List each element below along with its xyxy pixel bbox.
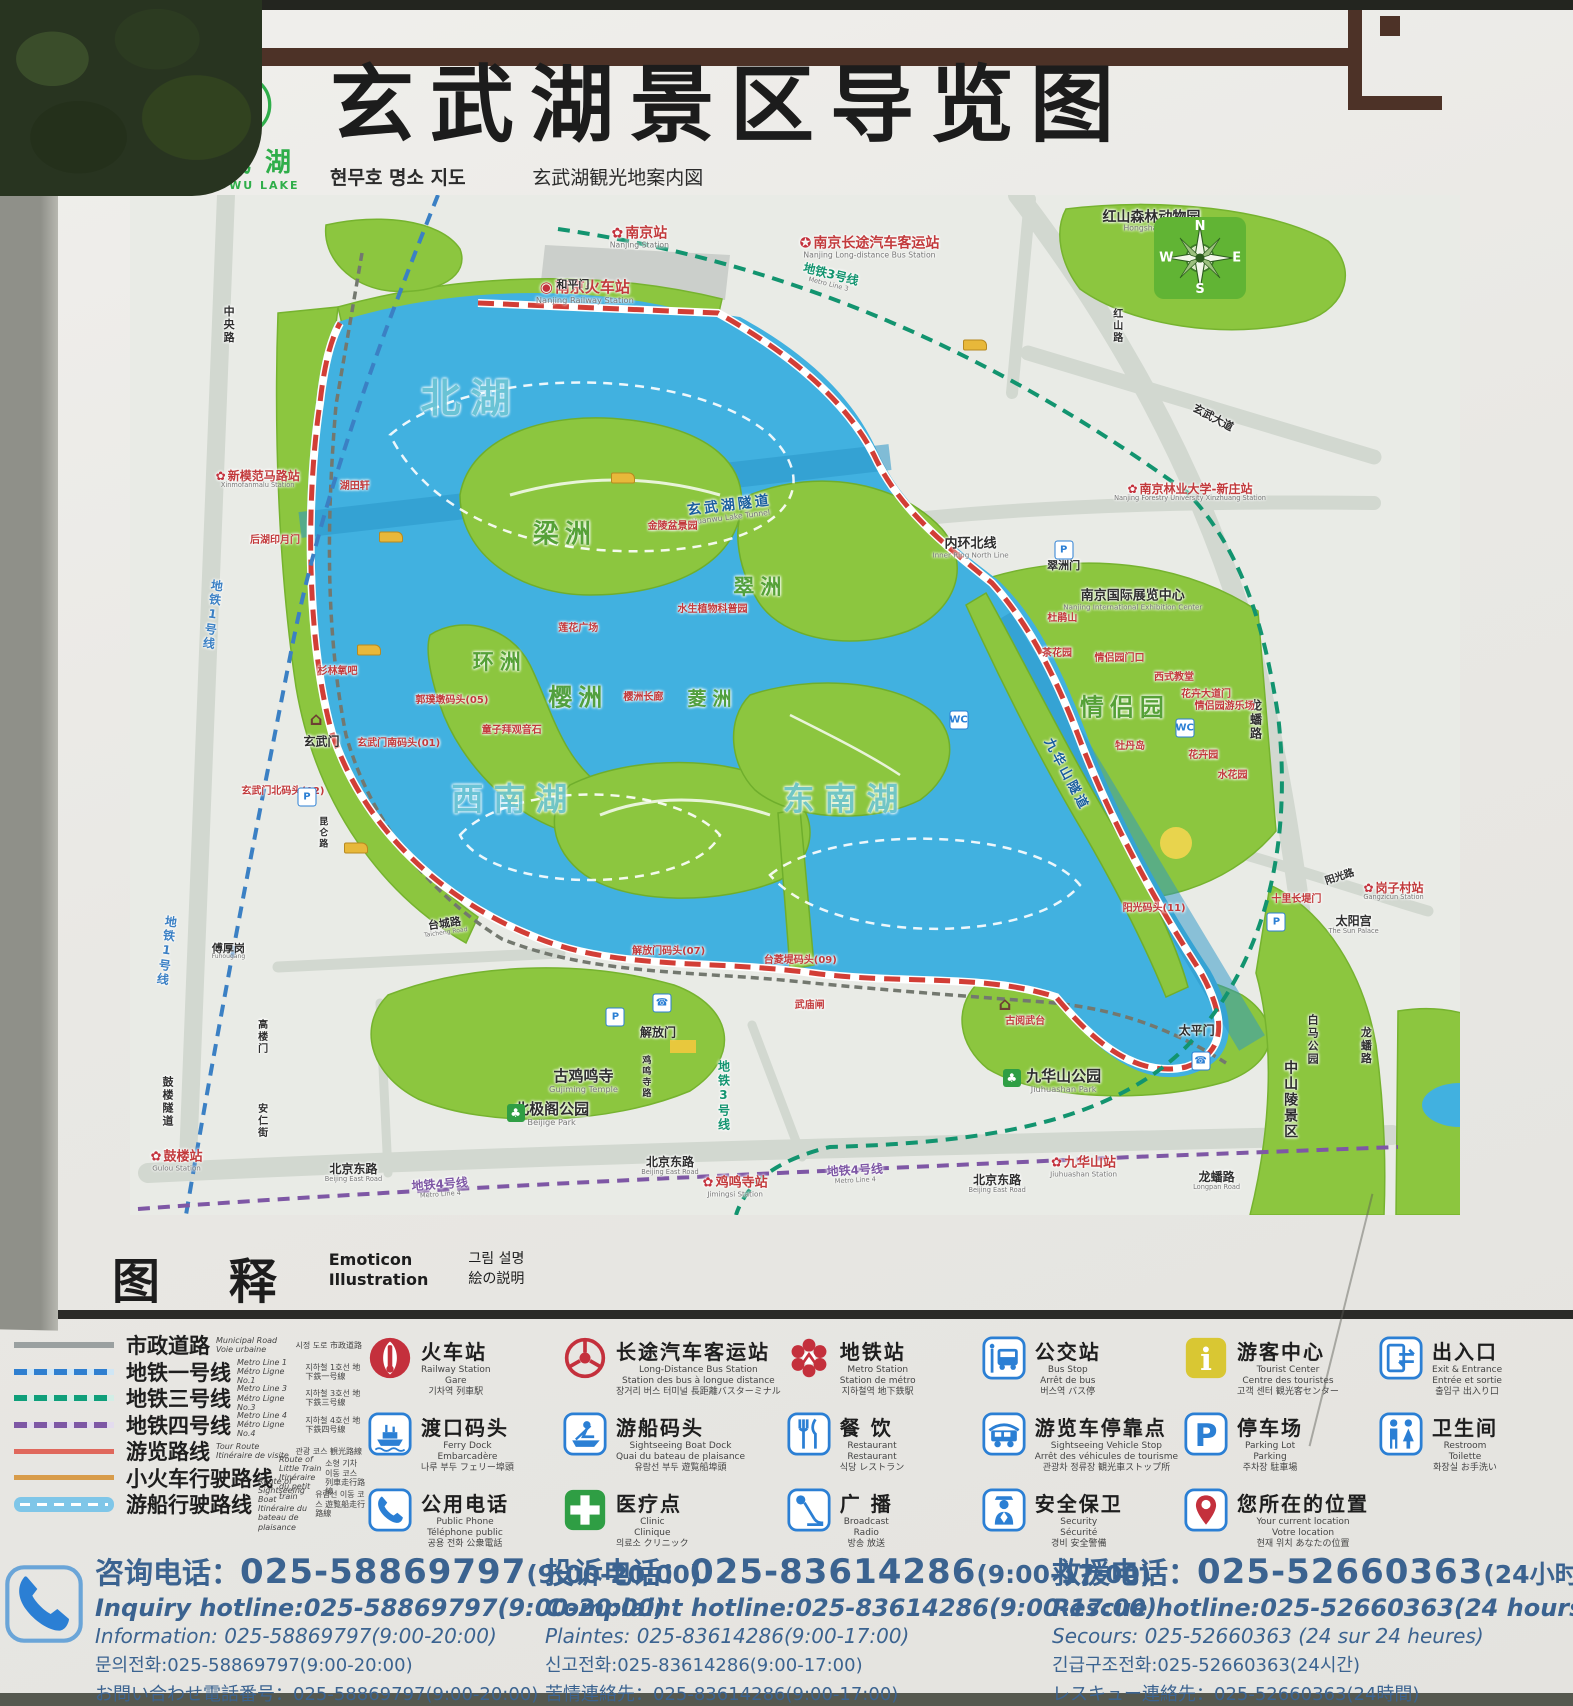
legend-route-road: 市政道路Municipal RoadVoie urbaine시정 도로 市政道路 <box>14 1332 366 1359</box>
map-label: 昆仑路 <box>317 816 326 849</box>
legend-item-subtext: Téléphone public <box>421 1528 509 1539</box>
clinic-icon <box>563 1488 607 1532</box>
map-label: 水生植物科普园 <box>678 605 748 616</box>
legend-item-pin: 您所在的位置Your current locationVotre locatio… <box>1184 1480 1373 1556</box>
phone-icon: ☎ <box>653 993 672 1012</box>
legend-item-name-cn: 医疗点 <box>616 1488 689 1517</box>
hotline-section: 咨询电话：025-58869797(9:00-20:00)Inquiry hot… <box>0 1550 1573 1700</box>
map-label: 南京国际展览中心Nanjing International Exhibition… <box>1063 589 1202 610</box>
map-label: 玄武门南码头(01) <box>357 739 440 750</box>
exit-icon <box>1379 1336 1423 1380</box>
map-label: 红山路 <box>1110 308 1121 344</box>
hotline-main-line: 咨询电话：025-58869797(9:00-20:00) <box>95 1550 540 1592</box>
map-label: ✿岗子村站Gangzicun Station <box>1363 882 1423 902</box>
hotline-main-line: 救援电话：025-52660363(24小时) <box>1052 1550 1567 1592</box>
parking-icon: P <box>606 1008 625 1027</box>
hotline-subline: レスキュー連絡先：025-52660363(24時間) <box>1052 1680 1567 1706</box>
route-name-en-fr: Metro Line 3Métro Ligne No.3 <box>237 1384 305 1412</box>
parking-icon: P <box>1054 540 1073 559</box>
map-label: ✿新模范马路站Xinmofanmalu Station <box>216 470 300 490</box>
hotline-subline: Information: 025-58869797(9:00-20:00) <box>95 1624 540 1648</box>
map-label: 内环北线Inner Ring North Line <box>932 537 1008 558</box>
route-name-en-fr: Municipal RoadVoie urbaine <box>216 1336 296 1354</box>
subtitle-kr-jp: 현무호 명소 지도 玄武湖観光地案内図 <box>330 163 1360 190</box>
map-label: 地铁4号线Metro Line 4 <box>411 1177 469 1200</box>
legend-item-subtext: 의료소 クリニック <box>616 1539 689 1550</box>
tour-line-sample-icon <box>14 1449 114 1454</box>
legend-item-ferry: 渡口码头Ferry DockEmbarcadère나루 부두 フェリー埠頭 <box>368 1404 557 1480</box>
legend-item-subtext: Toilette <box>1432 1452 1498 1463</box>
map-label: 北湖 <box>420 378 520 420</box>
legend-item-subtext: Public Phone <box>421 1517 509 1528</box>
map-label: 地铁4号线Metro Line 4 <box>826 1163 883 1185</box>
map-label: 童子拜观音石 <box>482 725 542 736</box>
legend-item-subtext: Clinique <box>616 1528 689 1539</box>
map-label: 西南湖 <box>451 783 577 817</box>
legend-item-subtext: 공용 전화 公衆電話 <box>421 1539 509 1550</box>
metro-logo-icon: ✿ <box>1127 483 1137 496</box>
route-name-en-fr: Metro Line 4Métro Ligne No.4 <box>237 1411 305 1439</box>
restroom-icon: WC <box>1175 719 1194 738</box>
legend-item-wc: 卫生间RestroomToilette화장실 お手洗い <box>1379 1404 1568 1480</box>
map-label: 解放门码头(07) <box>632 947 705 958</box>
map-label: ✿南京站Nanjing Station <box>610 226 669 249</box>
hotline-subline: 신고전화:025-83614286(9:00-17:00) <box>545 1651 1040 1677</box>
map-label: 北京东路Beijing East Road <box>641 1156 698 1176</box>
legend-item-subtext: Restaurant <box>840 1441 904 1452</box>
legend-item-name-cn: 游览车停靠点 <box>1035 1412 1178 1441</box>
route-name-kr-jp: 지하철 3호선 地下鉄三号線 <box>305 1389 366 1407</box>
legend-item-cart: 游览车停靠点Sightseeing Vehicle StopArrêt des … <box>982 1404 1178 1480</box>
map-label: 太平门 <box>1179 1025 1215 1038</box>
route-name-cn: 小火车行驶路线 <box>126 1463 273 1493</box>
legend-body: 市政道路Municipal RoadVoie urbaine시정 도로 市政道路… <box>0 1328 1573 1556</box>
map-label: 情侣园游乐场 <box>1195 702 1255 713</box>
tree-icon: ♣ <box>507 1104 525 1122</box>
legend-item-parking: 停车场Parking LotParking주차장 駐車場 <box>1184 1404 1373 1480</box>
route-name-en-fr: Route of Sightseeing BoatItinéraire du b… <box>258 1477 315 1532</box>
hotline-subline: 문의전화:025-58869797(9:00-20:00) <box>95 1651 540 1677</box>
map-label: 地铁1号线 <box>155 914 177 987</box>
legend-divider <box>0 1310 1573 1319</box>
map-label: 翠洲门 <box>1047 560 1080 572</box>
telephone-icon <box>4 1556 84 1652</box>
boat-icon <box>344 842 368 853</box>
compass-east: E <box>1232 251 1241 266</box>
legend-item-subtext: 장거리 버스 터미널 長距離バスターミナル <box>616 1387 781 1398</box>
map-label: 九华山隧道 <box>1042 737 1092 814</box>
legend-item-subtext: Quai du bateau de plaisance <box>616 1452 745 1463</box>
route-name-cn: 地铁一号线 <box>126 1357 231 1387</box>
boat-icon <box>357 644 381 655</box>
train-logo-icon: ◉ <box>540 280 553 296</box>
legend-route-list: 市政道路Municipal RoadVoie urbaine시정 도로 市政道路… <box>14 1332 366 1518</box>
m4-line-sample-icon <box>14 1422 114 1428</box>
legend-item-exit: 出入口Exit & EntranceEntrée et sortie출입구 出入… <box>1379 1328 1568 1404</box>
map-label: 莲花广场 <box>558 623 598 634</box>
hotline-subline: 긴급구조전화:025-52660363(24시간) <box>1052 1651 1567 1677</box>
legend-header: 图 释 EmoticonIllustration 그림 설명絵の説明 <box>112 1242 524 1312</box>
legend-item-guard: 安全保卫SecuritySécurité경비 安全警備 <box>982 1480 1178 1556</box>
map-label: 北极阁公园Beijige Park <box>514 1102 589 1126</box>
legend-item-subtext: Entrée et sortie <box>1432 1376 1502 1387</box>
tree-icon: ♣ <box>1003 1069 1021 1087</box>
coach-icon <box>563 1336 607 1380</box>
legend-route-boat: 游船行驶路线Route of Sightseeing BoatItinérair… <box>14 1491 366 1518</box>
legend-item-subtext: Tourist Center <box>1237 1365 1339 1376</box>
sign-board: 玄武湖 XUAN WU LAKE 玄武湖景区导览图 현무호 명소 지도 玄武湖観… <box>0 10 1573 1693</box>
hotline-subline: Inquiry hotline:025-58869797(9:00-20:00) <box>95 1594 540 1622</box>
m3-line-sample-icon <box>14 1395 114 1401</box>
compass-north: N <box>1195 219 1206 234</box>
route-name-cn: 地铁三号线 <box>126 1383 231 1413</box>
legend-item-subtext: 나루 부두 フェリー埠頭 <box>421 1463 514 1474</box>
map-label: 安仁街 <box>255 1103 266 1139</box>
legend-item-subtext: Railway Station <box>421 1365 491 1376</box>
restroom-icon: WC <box>949 711 968 730</box>
phone-icon: ☎ <box>1191 1051 1210 1070</box>
hotline-subline: Rescue hotline:025-52660363(24 hours) <box>1052 1594 1567 1622</box>
hotline-main-line: 投诉电话：025-83614286(9:00-17:00) <box>545 1550 1040 1592</box>
legend-item-name-cn: 您所在的位置 <box>1237 1488 1369 1517</box>
map-label: 花卉园 <box>1188 751 1218 762</box>
metro-logo-icon: ✿ <box>612 226 624 241</box>
legend-item-name-cn: 广 播 <box>840 1488 893 1517</box>
hotline-subline: Secours: 025-52660363 (24 sur 24 heures) <box>1052 1624 1567 1648</box>
map-label: 西式教堂 <box>1154 673 1194 684</box>
map-label: 太阳宫The Sun Palace <box>1328 916 1378 936</box>
legend-item-name-cn: 出入口 <box>1432 1336 1502 1365</box>
legend-item-subtext: Restaurant <box>840 1452 904 1463</box>
map-label: 龙蟠路 <box>1360 1026 1372 1065</box>
map-label: 傅厚岗Fuhougang <box>212 943 246 961</box>
route-name-kr-jp: 지하철 4호선 地下鉄四号線 <box>305 1416 366 1434</box>
legend-item-subtext: 관광차 정류장 観光車ストップ所 <box>1035 1463 1178 1474</box>
legend-item-subtext: Gare <box>421 1376 491 1387</box>
legend-item-subtext: 현재 위치 あなたの位置 <box>1237 1539 1369 1550</box>
map-label: ✿鼓楼站Gulou Station <box>151 1150 203 1171</box>
legend-item-food: 餐 饮RestaurantRestaurant식당 レストラン <box>787 1404 976 1480</box>
map-label: 玄武门 <box>304 735 340 748</box>
legend-item-subtext: Exit & Entrance <box>1432 1365 1502 1376</box>
map-label: 鸡鸣寺路 <box>640 1055 649 1099</box>
map-label: 环洲 <box>473 651 527 673</box>
legend-item-subtext: Sightseeing Boat Dock <box>616 1441 745 1452</box>
boat-icon <box>611 472 635 483</box>
legend-item-name-cn: 公用电话 <box>421 1488 509 1517</box>
train-icon <box>368 1336 412 1380</box>
photo-background: 玄武湖 XUAN WU LAKE 玄武湖景区导览图 현무호 명소 지도 玄武湖観… <box>0 0 1573 1693</box>
legend-title: 图 释 <box>112 1242 303 1312</box>
map-label: 水花园 <box>1218 771 1248 782</box>
parking-icon: P <box>1267 913 1286 932</box>
legend-item-subtext: Ferry Dock <box>421 1441 514 1452</box>
legend-item-subtext: Broadcast <box>840 1517 893 1528</box>
legend-item-subtext: Bus Stop <box>1035 1365 1101 1376</box>
map-label: 九华山公园Jiuhuashan Park <box>1026 1069 1101 1093</box>
cart-icon <box>982 1412 1026 1456</box>
boat-icon <box>379 531 403 542</box>
legend-item-subtext: Arrêt des véhicules de tourisme <box>1035 1452 1178 1463</box>
map-label: 北京东路Beijing East Road <box>968 1175 1025 1195</box>
legend-route-m4: 地铁四号线Metro Line 4Métro Ligne No.4지하철 4호선… <box>14 1412 366 1439</box>
legend-item-subtext: 지하철역 地下鉄駅 <box>840 1387 916 1398</box>
legend-item-subtext: 방송 放送 <box>840 1539 893 1550</box>
map-label: 樱洲长廊 <box>623 693 663 704</box>
food-icon <box>787 1412 831 1456</box>
legend-item-subtext: Sécurité <box>1035 1528 1123 1539</box>
legend-item-name-cn: 卫生间 <box>1432 1412 1498 1441</box>
legend-item-name-cn: 地铁站 <box>840 1336 916 1365</box>
map-label: 阳光码头(11) <box>1123 904 1186 915</box>
boat-line-sample-icon <box>14 1497 114 1512</box>
map-label: 地铁1号线 <box>201 579 223 652</box>
map-label: 台城路Taicheng Road <box>422 915 468 939</box>
route-name-cn: 游船行驶路线 <box>126 1489 252 1519</box>
gate-icon: ⌂ <box>306 711 326 727</box>
hotline-subline: 苦情連絡先：025-83614286(9:00-17:00) <box>545 1680 1040 1706</box>
map-label: 古阅武台 <box>1005 1017 1045 1028</box>
gate-icon: ⌂ <box>995 997 1015 1013</box>
legend-item-subtext: Arrêt de bus <box>1035 1376 1101 1387</box>
legend-item-subtext: 경비 安全警備 <box>1035 1539 1123 1550</box>
metro-logo-icon: ✿ <box>703 1177 714 1191</box>
boat-icon <box>963 339 987 350</box>
map-label: 古鸡鸣寺Gujiming Temple <box>549 1069 618 1093</box>
legend-item-subtext: 주차장 駐車場 <box>1237 1463 1303 1474</box>
foliage <box>0 0 262 196</box>
legend-item-name-cn: 游客中心 <box>1237 1336 1339 1365</box>
map-label: 北京东路Beijing East Road <box>325 1163 382 1183</box>
legend-item-subtext: Restroom <box>1432 1441 1498 1452</box>
legend-item-subtext: Votre location <box>1237 1528 1369 1539</box>
legend-item-subtext: Clinic <box>616 1517 689 1528</box>
legend-item-bus: 公交站Bus StopArrêt de bus버스역 バス停 <box>982 1328 1178 1404</box>
map-label: 郭璞墩码头(05) <box>415 696 488 707</box>
legend-item-subtext: Parking <box>1237 1452 1303 1463</box>
legend-item-name-cn: 渡口码头 <box>421 1412 514 1441</box>
parking-icon: P <box>297 787 316 806</box>
map-label: 菱洲 <box>688 690 738 710</box>
map-label: 玄武大道 <box>1190 403 1234 434</box>
legend-item-subtext: 화장실 お手洗い <box>1432 1463 1498 1474</box>
metro-icon <box>787 1336 831 1380</box>
map-label: 梁洲 <box>533 521 597 548</box>
map-label: 龙蟠路Longpan Road <box>1193 1172 1240 1192</box>
legend-title-kj: 그림 설명絵の説明 <box>468 1250 524 1289</box>
phone-icon <box>368 1488 412 1532</box>
route-name-cn: 游览路线 <box>126 1436 210 1466</box>
legend-item-subtext: Station de métro <box>840 1376 916 1387</box>
metro-logo-icon: ✿ <box>216 470 226 483</box>
map-label: 十里长堤门 <box>1271 895 1321 906</box>
map-label: 后湖印月门 <box>250 536 300 547</box>
concrete-wall <box>0 149 58 1330</box>
m1-line-sample-icon <box>14 1369 114 1375</box>
legend-item-metro: 地铁站Metro StationStation de métro지하철역 地下鉄… <box>787 1328 976 1404</box>
bus-icon <box>982 1336 1026 1380</box>
legend-item-boat: 游船码头Sightseeing Boat DockQuai du bateau … <box>563 1404 781 1480</box>
map-panel: 北湖西南湖东南湖梁洲环洲樱洲菱洲翠洲情侣园✿南京站Nanjing Station… <box>130 195 1460 1215</box>
map-label: ✿九华山站Jiuhuashan Station <box>1050 1156 1117 1177</box>
map-label: 玄武湖隧道Xuanwu Lake Tunnel <box>686 494 773 527</box>
board-frame-corner-right <box>1348 10 1442 110</box>
legend-item-subtext: 기차역 列車駅 <box>421 1387 491 1398</box>
route-name-kr-jp: 지하철 1호선 地下鉄一号線 <box>305 1363 366 1381</box>
legend-item-subtext: Embarcadère <box>421 1452 514 1463</box>
ferry-icon <box>368 1412 412 1456</box>
legend-item-subtext: Parking Lot <box>1237 1441 1303 1452</box>
map-label: 翠洲 <box>733 576 787 598</box>
coach-logo-icon: ✪ <box>800 237 812 252</box>
subtitle-japanese: 玄武湖観光地案内図 <box>532 167 703 189</box>
map-label: 解放门 <box>640 1027 676 1040</box>
legend-item-subtext: Metro Station <box>840 1365 916 1376</box>
hotline-2: 投诉电话：025-83614286(9:00-17:00)Complaint h… <box>545 1550 1040 1706</box>
map-label: 武庙闸 <box>795 1001 825 1012</box>
route-name-kr-jp: 시정 도로 市政道路 <box>296 1341 366 1350</box>
hotline-subline: Plaintes: 025-83614286(9:00-17:00) <box>545 1624 1040 1648</box>
mic-icon <box>787 1488 831 1532</box>
map-label: 茶花园 <box>1042 649 1072 660</box>
map-label: 情侣园 <box>1080 695 1170 720</box>
legend-icon-grid: 火车站Railway StationGare기차역 列車駅渡口码头Ferry D… <box>368 1328 1568 1556</box>
map-label: 牡丹岛 <box>1115 742 1145 753</box>
road-line-sample-icon <box>14 1342 114 1348</box>
train-line-sample-icon <box>14 1475 114 1480</box>
page-title: 玄武湖景区导览图 <box>330 38 1360 159</box>
map-label: 花卉大道门 <box>1181 690 1231 701</box>
legend-item-subtext: Sightseeing Vehicle Stop <box>1035 1441 1178 1452</box>
map-label: 中山陵景区 <box>1282 1060 1297 1140</box>
hotline-3: 救援电话：025-52660363(24小时)Rescue hotline:02… <box>1052 1550 1567 1706</box>
legend-item-subtext: Radio <box>840 1528 893 1539</box>
map-label: ✿南京林业大学-新庄站Nanjing Forestry University X… <box>1114 483 1266 503</box>
legend-item-subtext: Security <box>1035 1517 1123 1528</box>
map-label: 湖田轩 <box>340 481 370 492</box>
metro-logo-icon: ✿ <box>1363 882 1373 895</box>
hotline-1: 咨询电话：025-58869797(9:00-20:00)Inquiry hot… <box>95 1550 540 1706</box>
map-label: 樱洲 <box>548 685 608 710</box>
map-label: ✿鸡鸣寺站Jimingsi Station <box>703 1177 768 1198</box>
boat-icon <box>563 1412 607 1456</box>
legend-title-en: EmoticonIllustration <box>329 1250 429 1290</box>
parking-icon <box>1184 1412 1228 1456</box>
legend-item-mic: 广 播BroadcastRadio방송 放送 <box>787 1480 976 1556</box>
guard-icon <box>982 1488 1026 1532</box>
legend-item-subtext: 식당 レストラン <box>840 1463 904 1474</box>
map-label: 金陵盆景园 <box>648 521 698 532</box>
hotline-subline: Complaint hotline:025-83614286(9:00-17:0… <box>545 1594 1040 1622</box>
subtitle-korean: 현무호 명소 지도 <box>330 167 466 189</box>
legend-item-subtext: 버스역 バス停 <box>1035 1387 1101 1398</box>
pin-icon <box>1184 1488 1228 1532</box>
legend-item-subtext: Long-Distance Bus Station <box>616 1365 781 1376</box>
route-name-kr-jp: 유람선 이동 코스 遊覧船走行路線 <box>315 1490 366 1518</box>
map-label: 杜鹃山 <box>1047 614 1077 625</box>
legend-item-name-cn: 公交站 <box>1035 1336 1101 1365</box>
legend-route-m3: 地铁三号线Metro Line 3Métro Ligne No.3지하철 3호선… <box>14 1385 366 1412</box>
legend-item-name-cn: 火车站 <box>421 1336 491 1365</box>
map-label: 地铁3号线Metro Line 3 <box>800 261 859 294</box>
route-name-cn: 市政道路 <box>126 1330 210 1360</box>
legend-item-name-cn: 长途汽车客运站 <box>616 1336 781 1365</box>
route-name-en-fr: Metro Line 1Métro Ligne No.1 <box>237 1358 305 1386</box>
legend-item-name-cn: 餐 饮 <box>840 1412 904 1441</box>
legend-item-coach: 长途汽车客运站Long-Distance Bus StationStation … <box>563 1328 781 1404</box>
legend-item-subtext: Station des bus à longue distance <box>616 1376 781 1387</box>
map-label: 鼓楼隧道 <box>161 1076 173 1128</box>
map-label: 中央路 <box>223 305 235 344</box>
hotline-subline: お問い合わせ電話番号：025-58869797(9:00-20:00) <box>95 1680 540 1706</box>
map-label: 阳光路 <box>1324 869 1356 888</box>
info-icon <box>1184 1336 1228 1380</box>
map-label: ✪南京长途汽车客运站Nanjing Long-distance Bus Stat… <box>800 237 940 260</box>
map-label: 白马公园 <box>1307 1014 1319 1066</box>
legend-route-m1: 地铁一号线Metro Line 1Métro Ligne No.1지하철 1호선… <box>14 1359 366 1386</box>
legend-item-name-cn: 停车场 <box>1237 1412 1303 1441</box>
metro-logo-icon: ✿ <box>1051 1156 1062 1170</box>
legend-item-subtext: Your current location <box>1237 1517 1369 1528</box>
compass-rose: N S W E <box>1154 217 1246 299</box>
legend-item-name-cn: 安全保卫 <box>1035 1488 1123 1517</box>
compass-south: S <box>1195 282 1204 297</box>
route-name-cn: 地铁四号线 <box>126 1410 231 1440</box>
map-labels-layer: 北湖西南湖东南湖梁洲环洲樱洲菱洲翠洲情侣园✿南京站Nanjing Station… <box>130 195 1460 1215</box>
compass-west: W <box>1159 251 1173 266</box>
map-label: 东南湖 <box>783 783 909 817</box>
wc-icon <box>1379 1412 1423 1456</box>
legend-item-clinic: 医疗点ClinicClinique의료소 クリニック <box>563 1480 781 1556</box>
map-label: 高楼门 <box>255 1019 266 1055</box>
legend-item-subtext: 출입구 出入り口 <box>1432 1387 1502 1398</box>
map-label: 和平门 <box>556 279 589 291</box>
map-label: 台菱堤码头(09) <box>764 956 837 967</box>
map-label: 杉林氧吧 <box>317 667 357 678</box>
legend-item-subtext: 유람선 부두 遊覧船埠頭 <box>616 1463 745 1474</box>
metro-logo-icon: ✿ <box>151 1150 162 1164</box>
legend-item-phone: 公用电话Public PhoneTéléphone public공용 전화 公衆… <box>368 1480 557 1556</box>
legend-item-train: 火车站Railway StationGare기차역 列車駅 <box>368 1328 557 1404</box>
map-label: 情侣园门口 <box>1095 654 1145 665</box>
legend-item-info: 游客中心Tourist CenterCentre des touristes고객… <box>1184 1328 1373 1404</box>
legend-item-name-cn: 游船码头 <box>616 1412 745 1441</box>
map-label: 地铁3号线 <box>717 1060 730 1132</box>
